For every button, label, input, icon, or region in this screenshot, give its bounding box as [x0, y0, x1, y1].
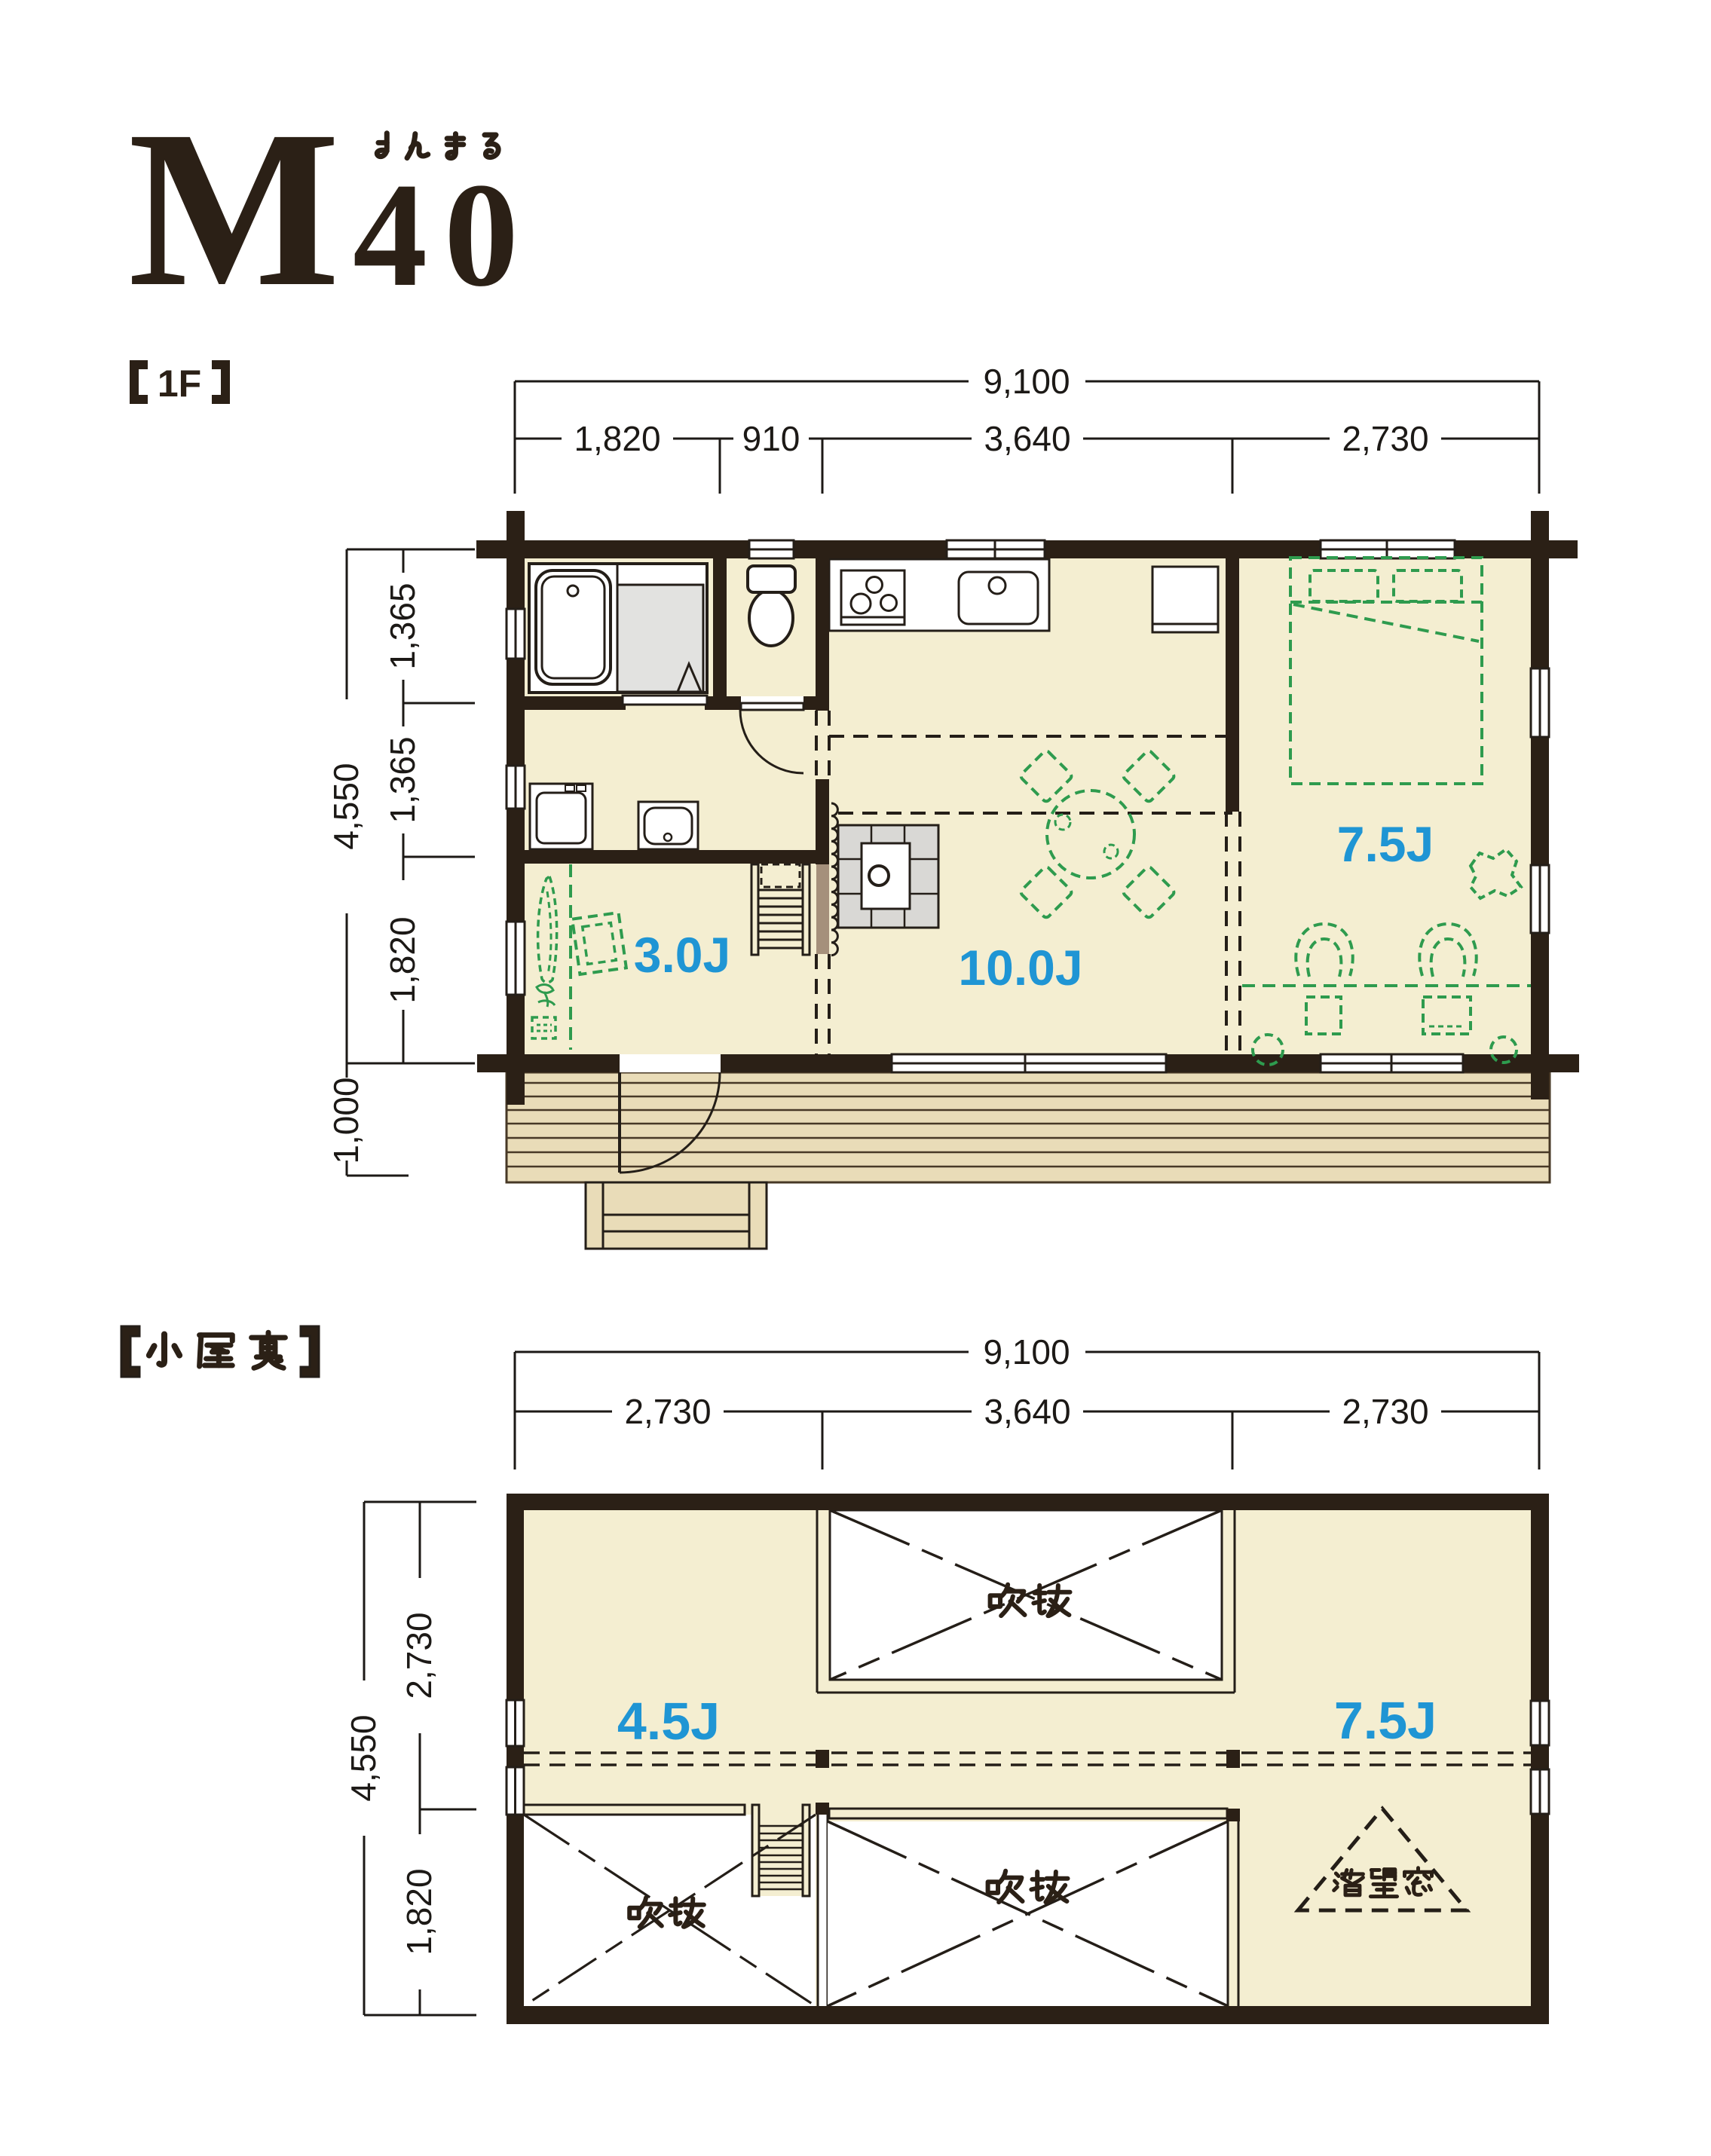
svg-text:2,730: 2,730 [1342, 419, 1428, 458]
svg-text:2,730: 2,730 [1342, 1392, 1428, 1431]
svg-text:9,100: 9,100 [983, 362, 1070, 401]
svg-text:3.0J: 3.0J [634, 927, 730, 983]
svg-text:910: 910 [742, 419, 800, 458]
svg-text:1,820: 1,820 [383, 916, 422, 1003]
svg-text:3,640: 3,640 [984, 419, 1070, 458]
svg-text:1,820: 1,820 [399, 1868, 439, 1955]
svg-text:40: 40 [353, 152, 535, 317]
svg-text:M: M [128, 84, 340, 333]
svg-text:2,730: 2,730 [399, 1612, 439, 1699]
svg-text:9,100: 9,100 [983, 1332, 1070, 1372]
svg-text:1,820: 1,820 [574, 419, 660, 458]
svg-text:4,550: 4,550 [326, 763, 366, 849]
svg-text:1,000: 1,000 [326, 1077, 366, 1164]
svg-text:1,365: 1,365 [383, 736, 422, 823]
svg-text:1F: 1F [158, 362, 201, 405]
svg-text:7.5J: 7.5J [1337, 816, 1434, 872]
svg-text:4.5J: 4.5J [617, 1692, 720, 1751]
svg-text:3,640: 3,640 [984, 1392, 1070, 1431]
svg-text:4,550: 4,550 [344, 1714, 383, 1801]
svg-text:2,730: 2,730 [624, 1392, 711, 1431]
svg-text:10.0J: 10.0J [958, 940, 1082, 995]
svg-text:7.5J: 7.5J [1334, 1691, 1437, 1750]
svg-text:1,365: 1,365 [383, 583, 422, 669]
